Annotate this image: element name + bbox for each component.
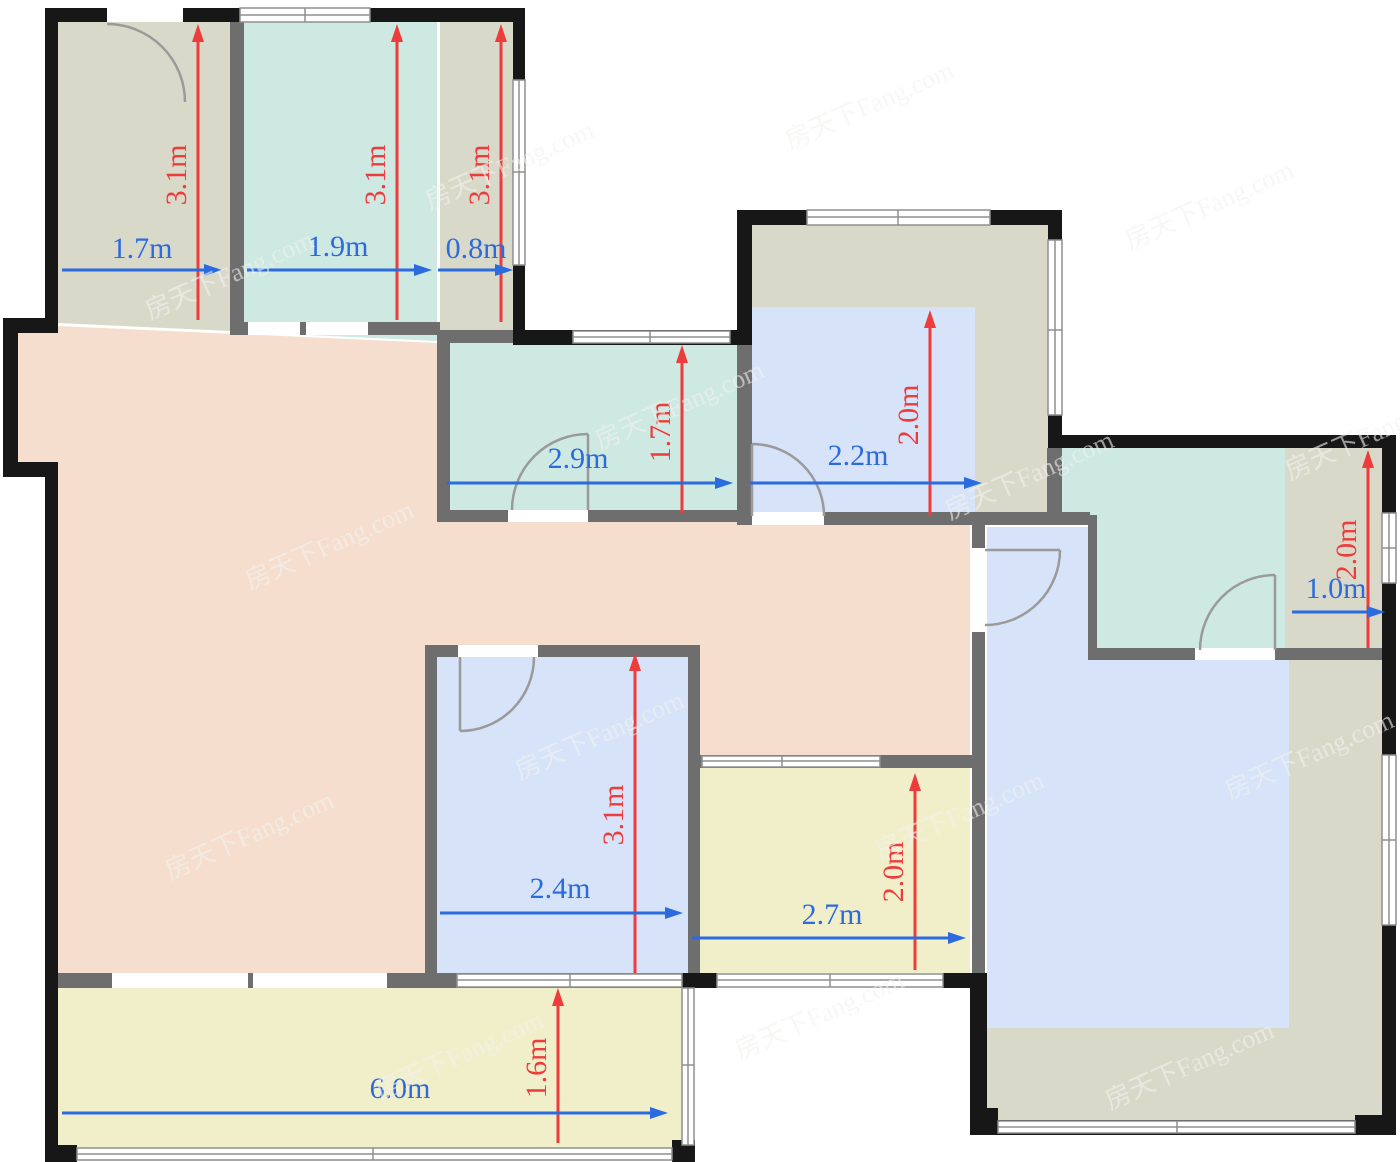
- dim-label: 3.1m: [160, 145, 193, 206]
- window-upper-right-top: [807, 210, 990, 225]
- wall-left-lower: [45, 462, 58, 1162]
- window-right-big: [1382, 755, 1396, 925]
- top-middle-room-floor: [244, 22, 437, 341]
- lower-yellow-room-floor: [700, 768, 970, 973]
- big-room-door-gap: [972, 548, 985, 632]
- dim-top-strip-width: 0.8m: [438, 232, 513, 276]
- window-yellow-top: [702, 756, 880, 767]
- right-room-door-gap: [1195, 648, 1275, 660]
- balcony-floor: [58, 988, 682, 1148]
- wall-notch-right: [1088, 515, 1097, 657]
- wall-post-yellow-left: [682, 973, 717, 988]
- window-upper-right-side: [1048, 240, 1062, 415]
- window-balcony-bottom: [77, 1148, 672, 1160]
- wall-left-upper: [45, 8, 58, 333]
- dim-label: 1.0m: [1306, 572, 1367, 605]
- wall-blue-left: [425, 645, 437, 985]
- dim-label: 3.1m: [597, 785, 630, 846]
- window-yellow-bottom: [717, 974, 943, 987]
- dim-label: 0.8m: [446, 232, 507, 265]
- dim-label: 1.7m: [112, 232, 173, 265]
- balcony-gap-2: [253, 973, 387, 988]
- dim-label: 2.4m: [530, 872, 591, 905]
- wall-teal-bottom: [437, 510, 752, 522]
- window-big-room-bottom: [998, 1121, 1355, 1133]
- wall-big-room-left: [970, 973, 987, 1120]
- dim-label: 3.1m: [359, 145, 392, 206]
- wall-corner-balcony-left: [45, 1145, 77, 1162]
- topmiddle-gap-2: [306, 322, 368, 335]
- wall-teal-left: [437, 335, 450, 522]
- window-mid-top: [573, 331, 730, 343]
- teal-door-gap: [508, 510, 588, 522]
- upper-right-room-zone: [752, 307, 975, 518]
- dim-label: 2.0m: [892, 385, 925, 446]
- dim-label: 2.2m: [828, 439, 889, 472]
- dim-label: 2.7m: [802, 898, 863, 931]
- window-blue-room-bottom: [457, 974, 682, 987]
- wall-blue-right: [688, 645, 700, 973]
- balcony-gap-1: [112, 973, 248, 988]
- topmiddle-gap-1: [248, 322, 300, 335]
- watermark-text: 房天下Fang.com: [1121, 155, 1298, 255]
- wall-post-yellow-right: [943, 973, 980, 988]
- window-balcony-right: [682, 988, 694, 1145]
- floor-plan-page: 3.1m 3.1m 3.1m 1.7m 2.0m 2.0m 3.1m 2.0m: [0, 0, 1400, 1162]
- wall-corner-br-big: [1355, 1115, 1396, 1135]
- wall-notch-left: [3, 318, 18, 477]
- dim-label: 1.9m: [308, 230, 369, 263]
- dim-label: 1.6m: [520, 1038, 553, 1099]
- entry-door-gap: [107, 8, 183, 22]
- upper-right-door-gap: [752, 512, 824, 525]
- floor-plan-canvas: 3.1m 3.1m 3.1m 1.7m 2.0m 2.0m 3.1m 2.0m: [0, 0, 1400, 1162]
- wall-step-vertical: [737, 215, 752, 345]
- window-top-middle: [240, 8, 370, 22]
- watermark-text: 房天下Fang.com: [781, 55, 958, 155]
- blue-room-door-gap: [458, 645, 538, 657]
- window-right-small: [1382, 513, 1396, 583]
